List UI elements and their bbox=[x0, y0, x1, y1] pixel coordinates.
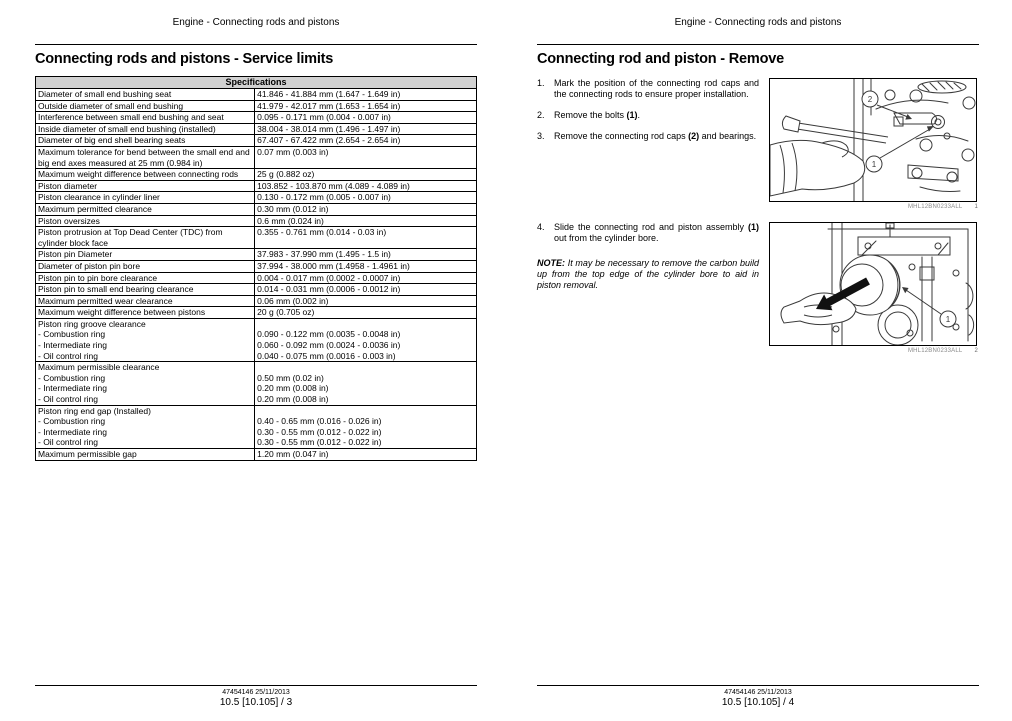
spec-label: Diameter of piston pin bore bbox=[36, 260, 255, 272]
page-number: 10.5 [10.105] / 3 bbox=[35, 697, 477, 709]
svg-text:1: 1 bbox=[872, 160, 877, 169]
page-title: Connecting rod and piston - Remove bbox=[537, 51, 784, 67]
page-right: Engine - Connecting rods and pistons Con… bbox=[537, 0, 979, 721]
spec-value: 41.846 - 41.884 mm (1.647 - 1.649 in) bbox=[255, 89, 477, 101]
steps-4: 4.Slide the connecting rod and piston as… bbox=[537, 222, 759, 244]
spec-label: Piston pin to small end bearing clearanc… bbox=[36, 284, 255, 296]
procedure-step: 3.Remove the connecting rod caps (2) and… bbox=[537, 131, 759, 142]
figure-piston-removal: 1 bbox=[769, 222, 977, 346]
spec-value: 37.994 - 38.000 mm (1.4958 - 1.4961 in) bbox=[255, 260, 477, 272]
spec-label: Maximum permitted wear clearance bbox=[36, 295, 255, 307]
spec-value: 0.6 mm (0.024 in) bbox=[255, 215, 477, 227]
spec-label: Piston ring end gap (Installed)- Combust… bbox=[36, 405, 255, 448]
page-footer: 47454146 25/11/2013 10.5 [10.105] / 4 bbox=[537, 685, 979, 709]
table-row: Piston clearance in cylinder liner0.130 … bbox=[36, 192, 477, 204]
table-row: Maximum permissible clearance- Combustio… bbox=[36, 362, 477, 405]
spec-label: Piston protrusion at Top Dead Center (TD… bbox=[36, 227, 255, 249]
hand-illustration bbox=[770, 140, 865, 196]
spec-value: 103.852 - 103.870 mm (4.089 - 4.089 in) bbox=[255, 180, 477, 192]
table-row: Piston diameter103.852 - 103.870 mm (4.0… bbox=[36, 180, 477, 192]
wrench-illustration bbox=[782, 116, 888, 143]
spec-label: Maximum permissible gap bbox=[36, 449, 255, 461]
spec-value: 67.407 - 67.422 mm (2.654 - 2.654 in) bbox=[255, 135, 477, 147]
table-row: Maximum permitted clearance0.30 mm (0.01… bbox=[36, 203, 477, 215]
spec-value: 20 g (0.705 oz) bbox=[255, 307, 477, 319]
spec-label: Piston pin Diameter bbox=[36, 249, 255, 261]
header-rule bbox=[537, 44, 979, 45]
table-row: Outside diameter of small end bushing41.… bbox=[36, 100, 477, 112]
spec-label: Maximum permitted clearance bbox=[36, 203, 255, 215]
spec-label: Piston pin to pin bore clearance bbox=[36, 272, 255, 284]
note-text: It may be necessary to remove the carbon… bbox=[537, 258, 759, 290]
spec-label: Outside diameter of small end bushing bbox=[36, 100, 255, 112]
procedure-block-1: 1.Mark the position of the connecting ro… bbox=[537, 78, 979, 222]
svg-text:2: 2 bbox=[868, 95, 873, 104]
spec-value: 0.004 - 0.017 mm (0.0002 - 0.0007 in) bbox=[255, 272, 477, 284]
table-row: Diameter of piston pin bore37.994 - 38.0… bbox=[36, 260, 477, 272]
running-header: Engine - Connecting rods and pistons bbox=[35, 17, 477, 28]
running-header: Engine - Connecting rods and pistons bbox=[537, 17, 979, 28]
spec-value: 0.355 - 0.761 mm (0.014 - 0.03 in) bbox=[255, 227, 477, 249]
spec-table-body: Diameter of small end bushing seat41.846… bbox=[36, 89, 477, 461]
table-row: Piston oversizes0.6 mm (0.024 in) bbox=[36, 215, 477, 227]
spec-label: Inside diameter of small end bushing (in… bbox=[36, 123, 255, 135]
note-paragraph: NOTE: It may be necessary to remove the … bbox=[537, 258, 759, 291]
table-row: Piston pin to small end bearing clearanc… bbox=[36, 284, 477, 296]
procedure-step: 4.Slide the connecting rod and piston as… bbox=[537, 222, 759, 244]
spec-label: Piston oversizes bbox=[36, 215, 255, 227]
revision-line: 47454146 25/11/2013 bbox=[35, 689, 477, 697]
table-row: Maximum tolerance for bend between the s… bbox=[36, 146, 477, 168]
spec-label: Diameter of small end bushing seat bbox=[36, 89, 255, 101]
spec-label: Maximum weight difference between connec… bbox=[36, 169, 255, 181]
spec-value: 0.095 - 0.171 mm (0.004 - 0.007 in) bbox=[255, 112, 477, 124]
table-row: Interference between small end bushing a… bbox=[36, 112, 477, 124]
revision-line: 47454146 25/11/2013 bbox=[537, 689, 979, 697]
spec-value: 41.979 - 42.017 mm (1.653 - 1.654 in) bbox=[255, 100, 477, 112]
figure-rod-cap-removal: 2 1 bbox=[769, 78, 977, 202]
table-row: Diameter of small end bushing seat41.846… bbox=[36, 89, 477, 101]
spec-value: 0.50 mm (0.02 in)0.20 mm (0.008 in)0.20 … bbox=[255, 362, 477, 405]
spec-value: 38.004 - 38.014 mm (1.496 - 1.497 in) bbox=[255, 123, 477, 135]
spec-label: Maximum permissible clearance- Combustio… bbox=[36, 362, 255, 405]
spec-value: 0.40 - 0.65 mm (0.016 - 0.026 in)0.30 - … bbox=[255, 405, 477, 448]
spec-value: 0.07 mm (0.003 in) bbox=[255, 146, 477, 168]
spec-label: Piston ring groove clearance- Combustion… bbox=[36, 318, 255, 361]
spec-label: Piston diameter bbox=[36, 180, 255, 192]
table-row: Piston ring end gap (Installed)- Combust… bbox=[36, 405, 477, 448]
note-label: NOTE: bbox=[537, 258, 565, 268]
page-number: 10.5 [10.105] / 4 bbox=[537, 697, 979, 709]
procedure-block-2: 4.Slide the connecting rod and piston as… bbox=[537, 222, 979, 363]
procedure-step: 2.Remove the bolts (1). bbox=[537, 110, 759, 121]
table-row: Inside diameter of small end bushing (in… bbox=[36, 123, 477, 135]
table-row: Piston protrusion at Top Dead Center (TD… bbox=[36, 227, 477, 249]
spec-value: 0.06 mm (0.002 in) bbox=[255, 295, 477, 307]
figure-caption: MHL12BN0233ALL1 bbox=[769, 204, 978, 210]
spec-label: Interference between small end bushing a… bbox=[36, 112, 255, 124]
callout-1-badge: 1 bbox=[866, 126, 934, 172]
table-row: Maximum permitted wear clearance0.06 mm … bbox=[36, 295, 477, 307]
steps-1-3: 1.Mark the position of the connecting ro… bbox=[537, 78, 759, 152]
spec-value: 0.130 - 0.172 mm (0.005 - 0.007 in) bbox=[255, 192, 477, 204]
spec-value: 1.20 mm (0.047 in) bbox=[255, 449, 477, 461]
spec-label: Maximum tolerance for bend between the s… bbox=[36, 146, 255, 168]
svg-text:1: 1 bbox=[946, 315, 951, 324]
table-row: Maximum weight difference between piston… bbox=[36, 307, 477, 319]
spec-value: 25 g (0.882 oz) bbox=[255, 169, 477, 181]
header-rule bbox=[35, 44, 477, 45]
table-row: Diameter of big end shell bearing seats6… bbox=[36, 135, 477, 147]
table-row: Maximum weight difference between connec… bbox=[36, 169, 477, 181]
table-row: Piston pin to pin bore clearance0.004 - … bbox=[36, 272, 477, 284]
table-header: Specifications bbox=[36, 77, 477, 89]
table-row: Maximum permissible gap1.20 mm (0.047 in… bbox=[36, 449, 477, 461]
spec-value: 0.090 - 0.122 mm (0.0035 - 0.0048 in)0.0… bbox=[255, 318, 477, 361]
page-left: Engine - Connecting rods and pistons Con… bbox=[35, 0, 477, 721]
spec-value: 37.983 - 37.990 mm (1.495 - 1.5 in) bbox=[255, 249, 477, 261]
spec-label: Maximum weight difference between piston… bbox=[36, 307, 255, 319]
spec-label: Diameter of big end shell bearing seats bbox=[36, 135, 255, 147]
table-row: Piston ring groove clearance- Combustion… bbox=[36, 318, 477, 361]
specifications-table: Specifications Diameter of small end bus… bbox=[35, 76, 477, 461]
figure-caption: MHL12BN0233ALL2 bbox=[769, 348, 978, 354]
spec-value: 0.014 - 0.031 mm (0.0006 - 0.0012 in) bbox=[255, 284, 477, 296]
table-row: Piston pin Diameter37.983 - 37.990 mm (1… bbox=[36, 249, 477, 261]
spec-label: Piston clearance in cylinder liner bbox=[36, 192, 255, 204]
spec-value: 0.30 mm (0.012 in) bbox=[255, 203, 477, 215]
procedure-step: 1.Mark the position of the connecting ro… bbox=[537, 78, 759, 100]
page-title: Connecting rods and pistons - Service li… bbox=[35, 51, 333, 67]
page-footer: 47454146 25/11/2013 10.5 [10.105] / 3 bbox=[35, 685, 477, 709]
